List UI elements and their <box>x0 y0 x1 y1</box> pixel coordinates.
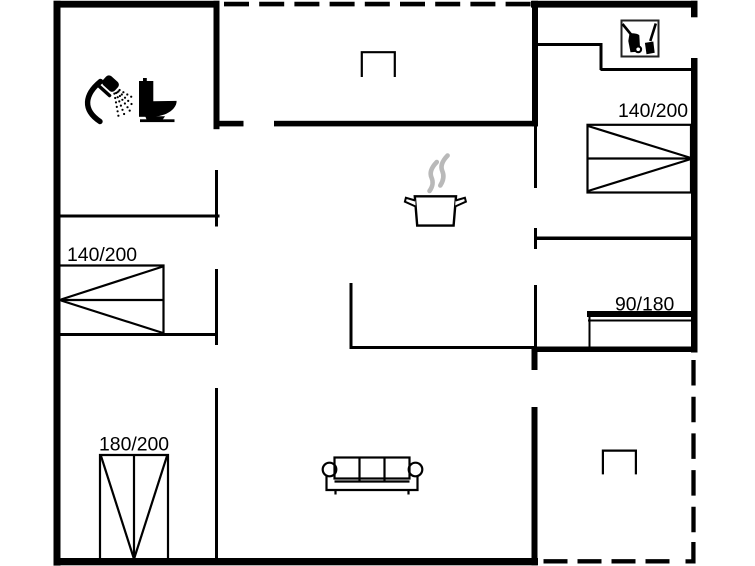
svg-text:140/200: 140/200 <box>67 244 137 266</box>
svg-text:140/200: 140/200 <box>618 100 688 122</box>
svg-text:90/180: 90/180 <box>615 294 675 316</box>
svg-text:180/200: 180/200 <box>99 434 169 456</box>
